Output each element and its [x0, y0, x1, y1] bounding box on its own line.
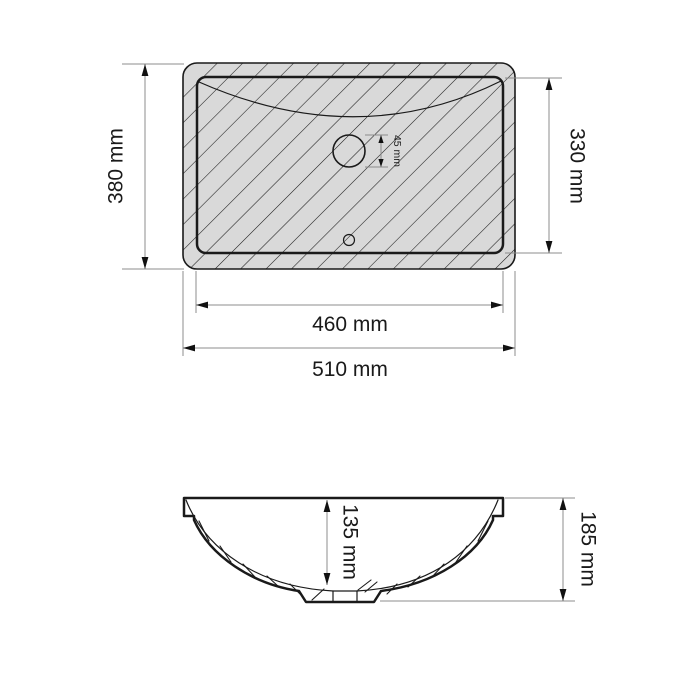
dim-label-inner-height: 330 mm — [566, 128, 589, 204]
dim-label-drain-diameter: 45 mm — [391, 135, 403, 167]
drain-outlet — [333, 591, 357, 601]
dimension-overall-height-185: 185 mm — [380, 498, 600, 601]
dimension-outer-height-380: 380 mm — [105, 64, 185, 269]
dim-label-overall-height: 185 mm — [577, 511, 600, 587]
sink-dimension-drawing: 45 mm 380 mm 330 mm 460 mm — [0, 0, 700, 700]
sink-rim-hatch — [183, 63, 515, 269]
side-view: 135 mm 185 mm — [184, 498, 600, 602]
dim-label-outer-width: 510 mm — [312, 358, 388, 381]
dimension-inner-height-330: 330 mm — [505, 78, 589, 253]
dim-label-inner-width: 460 mm — [312, 313, 388, 336]
dim-label-bowl-depth: 135 mm — [339, 504, 362, 580]
dimension-inner-width-460: 460 mm — [196, 271, 503, 336]
technical-drawing-canvas: 45 mm 380 mm 330 mm 460 mm — [0, 0, 700, 700]
dimension-bowl-depth-135: 135 mm — [324, 500, 362, 585]
dim-label-outer-height: 380 mm — [105, 128, 128, 204]
top-view: 45 mm 380 mm 330 mm 460 mm — [105, 63, 589, 381]
